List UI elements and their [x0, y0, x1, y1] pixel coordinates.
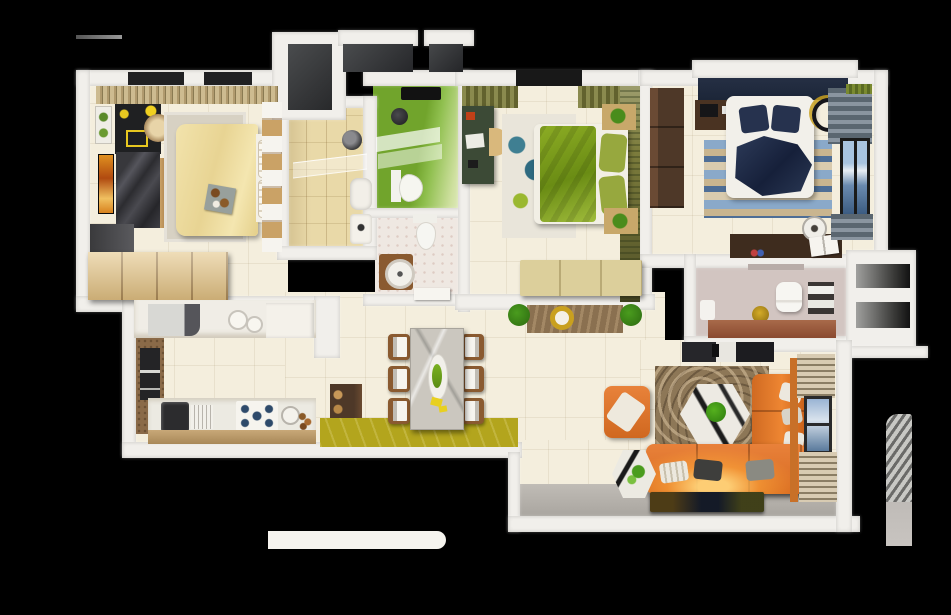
kitchen-plate-2 [246, 316, 263, 333]
ensuite-shower-head [342, 130, 362, 150]
master-pillow-1 [598, 133, 627, 173]
dining-chair-left-1 [388, 334, 410, 360]
b1-picture-frames [95, 106, 112, 144]
wall-utility-bottom [846, 346, 928, 358]
utility-duct-lower [856, 302, 910, 328]
ensuite-washbasin [350, 214, 372, 244]
b3-curtain-top [828, 88, 872, 144]
master-nightstand-top [602, 104, 636, 130]
b1-tv-unit-marble [116, 152, 160, 228]
b1-curtain [96, 86, 278, 104]
hall-plant-right [620, 304, 642, 326]
master-window-pane [516, 70, 582, 86]
master-desk-red-item [466, 112, 475, 120]
pillar-striped-top [886, 414, 912, 502]
living-tv-console [682, 342, 774, 362]
hall-plant-left [508, 304, 530, 326]
wall-living-right [836, 340, 852, 532]
b3-laptop [700, 104, 718, 117]
b3-curtain-bottom [831, 214, 873, 240]
gb-ceiling-vent [401, 87, 441, 100]
kitchen-upper-cabinet [266, 303, 314, 338]
living-blinds-top [797, 354, 835, 398]
wall-ensuite-bottom [277, 246, 377, 260]
kitchen-window [140, 348, 160, 400]
wall-terrace-bottom [508, 516, 860, 532]
b1-wardrobe [88, 252, 228, 300]
dining-chair-right-3 [462, 398, 484, 424]
bath2-copper-floor [708, 320, 836, 338]
living-window [804, 396, 832, 454]
master-flowers-top [610, 108, 626, 124]
console-vase [712, 344, 719, 357]
wall-kitchen-return [314, 296, 340, 358]
master-curtain-left [462, 86, 518, 108]
b3-navy-pillow-2 [771, 105, 802, 134]
b1-window-pane-2 [204, 72, 252, 85]
living-blinds-bottom [799, 452, 837, 502]
bath2-toilet [776, 282, 802, 312]
b1-wall-tv [98, 154, 114, 214]
dining-chair-left-3 [388, 398, 410, 424]
master-flowers-bottom [612, 213, 628, 229]
b1-breakfast-tray [204, 184, 236, 214]
kitchen-spice-jars [297, 412, 315, 430]
kitchen-sink [161, 402, 189, 432]
wall-bedroom3-right [874, 70, 888, 266]
utility-duct-upper [856, 264, 910, 288]
b1-door-opening [90, 224, 134, 252]
wc-door-leaf [414, 288, 450, 300]
kitchen-dish-rack [191, 405, 213, 429]
sofa-pillow-dark [693, 459, 723, 482]
kitchen-gas-stove [236, 401, 278, 431]
bath2-towel-rack [808, 282, 834, 314]
b3-green-curtain-sliver [846, 84, 872, 94]
gb-round-basin [391, 108, 408, 125]
kitchen-plate-1 [228, 310, 248, 330]
master-desk-dark-item [468, 160, 478, 168]
living-table-plant [706, 402, 726, 422]
loggia-left-dark [288, 44, 332, 110]
b3-wardrobe [650, 88, 684, 208]
curtain-rod [76, 35, 122, 39]
striped-pillar [886, 414, 912, 546]
floorplan-stage [0, 0, 951, 615]
master-green-blanket [540, 126, 596, 222]
hall-gold-table [550, 306, 574, 330]
kitchen-appliance [148, 304, 200, 336]
wall-bedroom1-top [76, 70, 292, 86]
dining-chair-right-1 [462, 334, 484, 360]
dining-dish-greens [432, 364, 442, 388]
loggia-right-frame [692, 60, 858, 78]
b1-bed [176, 124, 258, 236]
dining-chair-left-2 [388, 366, 410, 392]
living-floor-tv [650, 492, 764, 512]
bath2-washbasin [700, 300, 715, 320]
b1-window-pane-1 [128, 72, 184, 85]
sofa-pillow-gray [745, 459, 775, 481]
sofa-pillow-striped [659, 460, 690, 484]
master-desk-papers [465, 133, 484, 149]
ac-slab-b [429, 44, 463, 72]
ensuite-bathtub [350, 178, 372, 210]
hall-entry-rug [527, 305, 623, 333]
bath2-mirror [748, 264, 804, 270]
b3-side-window [840, 138, 870, 218]
white-rounded-ledge [268, 531, 446, 549]
dining-chair-right-2 [462, 366, 484, 392]
master-storage-bench [520, 260, 642, 296]
b3-navy-pillow-1 [738, 104, 769, 134]
b3-desk-trinkets [750, 248, 764, 258]
b1-towel-shelf [262, 102, 282, 252]
wc-round-basin [385, 259, 415, 289]
master-nightstand-bottom [604, 208, 638, 234]
kitchen-tan-floor [148, 430, 316, 444]
ac-slab-a [343, 44, 413, 72]
